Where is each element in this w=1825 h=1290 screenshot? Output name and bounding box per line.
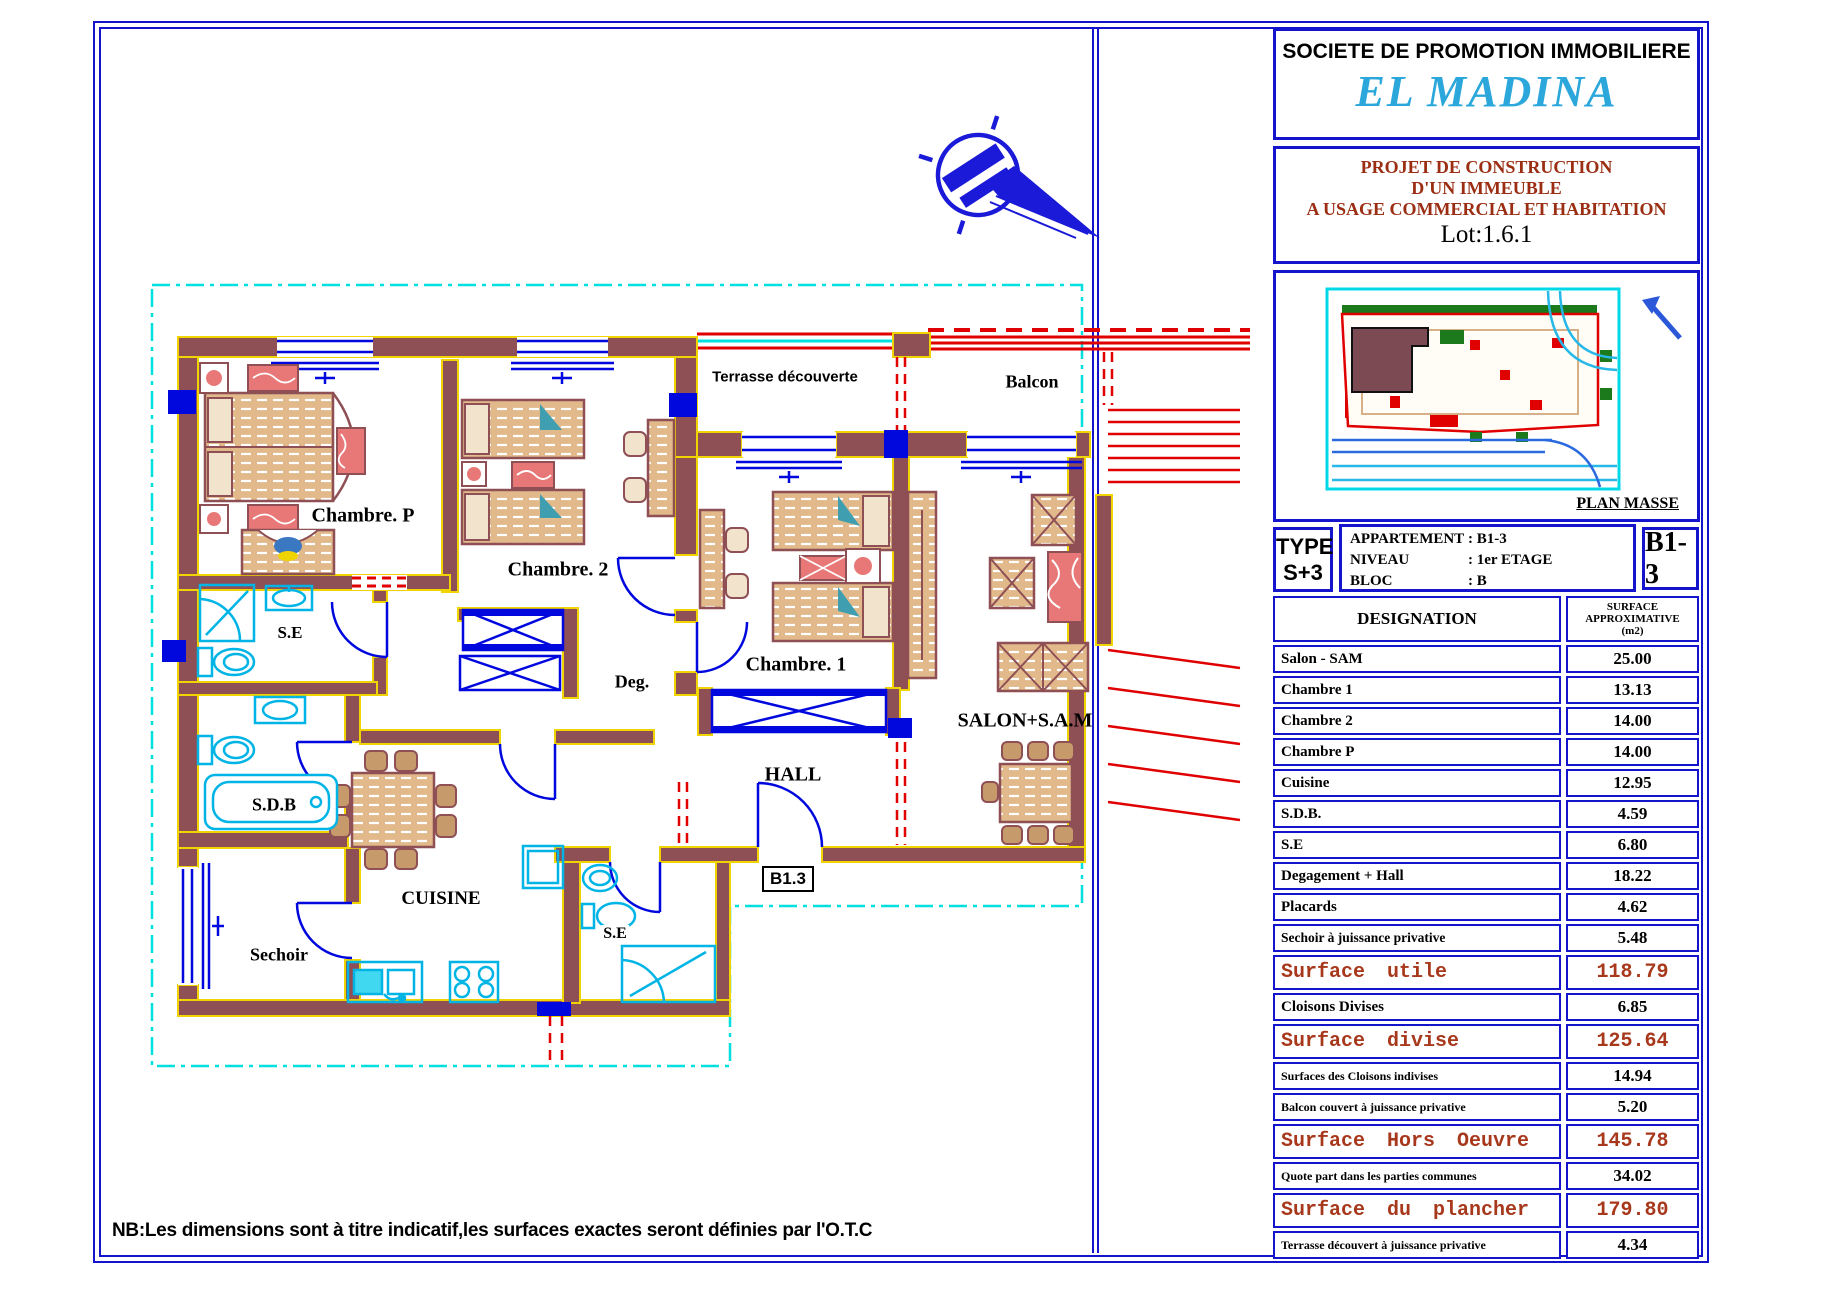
table-row-value: 25.00	[1566, 645, 1699, 673]
table-row-value: 179.80	[1566, 1193, 1699, 1228]
chambre-p-furniture	[200, 363, 365, 574]
drawing-sheet: Terrasse découverte Balcon Chambre. P Ch…	[0, 0, 1825, 1290]
table-surface-column: SURFACE APPROXIMATIVE (m2) 25.0013.1314.…	[1566, 596, 1699, 1259]
info-value: : B1-3	[1468, 529, 1507, 550]
table-row-label: Surface du plancher	[1273, 1193, 1561, 1228]
table-row-label: Cloisons Divises	[1273, 993, 1561, 1021]
room-label-hall: HALL	[765, 764, 822, 787]
surface-header-line: (m2)	[1622, 625, 1644, 637]
toilet-icon	[198, 736, 254, 764]
table-row-label: Chambre P	[1273, 738, 1561, 766]
table-row-value: 4.34	[1566, 1231, 1699, 1259]
table-row-value: 125.64	[1566, 1024, 1699, 1059]
table-row-value: 6.80	[1566, 831, 1699, 859]
room-label-chambre-p: Chambre. P	[312, 505, 415, 528]
plan-masse-box: PLAN MASSE	[1273, 270, 1700, 522]
room-label-terrasse: Terrasse découverte	[712, 369, 858, 386]
armchair	[1032, 495, 1076, 545]
table-row-label: S.D.B.	[1273, 800, 1561, 828]
table-row-value: 4.62	[1566, 893, 1699, 921]
project-line-1: PROJET DE CONSTRUCTION	[1276, 157, 1697, 178]
unit-code-box: B1-3	[1642, 527, 1699, 590]
project-line-3: A USAGE COMMERCIAL ET HABITATION	[1276, 199, 1697, 220]
rug	[248, 365, 298, 391]
fridge-icon	[523, 846, 563, 888]
table-row-label: Degagement + Hall	[1273, 862, 1561, 890]
chambre-2-furniture	[462, 400, 674, 544]
dining-table	[982, 742, 1074, 844]
lot-number: Lot:1.6.1	[1276, 221, 1697, 249]
table-row-value: 4.59	[1566, 800, 1699, 828]
table-row-label: Chambre 1	[1273, 676, 1561, 704]
unit-code: B1-3	[1645, 527, 1696, 591]
brand-name: EL MADINA	[1276, 66, 1697, 117]
table-row-label: Quote part dans les parties communes	[1273, 1162, 1561, 1190]
table-designation-column: DESIGNATION Salon - SAMChambre 1Chambre …	[1273, 596, 1561, 1259]
room-label-se-lower: S.E	[601, 925, 629, 943]
info-label: APPARTEMENT	[1342, 529, 1468, 550]
type-box: TYPE S+3	[1273, 527, 1333, 592]
room-label-sechoir: Sechoir	[250, 945, 308, 966]
table-row-value: 13.13	[1566, 676, 1699, 704]
table-row-value: 12.95	[1566, 769, 1699, 797]
table-row-value: 14.00	[1566, 707, 1699, 735]
table-row-label: Placards	[1273, 893, 1561, 921]
table-row-value: 18.22	[1566, 862, 1699, 890]
apartment-info-box: APPARTEMENT : B1-3 NIVEAU : 1er ETAGE BL…	[1339, 524, 1636, 592]
table-row-label: Surface Hors Oeuvre	[1273, 1124, 1561, 1159]
room-label-cuisine: CUISINE	[401, 888, 480, 910]
surface-header-line: APPROXIMATIVE	[1585, 613, 1680, 625]
cuisine-furniture	[330, 751, 563, 1002]
info-label: NIVEAU	[1342, 550, 1468, 571]
room-label-chambre-1: Chambre. 1	[746, 654, 847, 677]
closet-2	[460, 656, 560, 690]
table-row-label: Terrasse découvert à juissance privative	[1273, 1231, 1561, 1259]
stairwell	[1108, 410, 1240, 820]
room-label-sdb: S.D.B	[249, 795, 299, 816]
balcony-railing	[928, 330, 1250, 349]
room-label-deg: Deg.	[615, 672, 650, 693]
project-box: PROJET DE CONSTRUCTION D'UN IMMEUBLE A U…	[1273, 146, 1700, 264]
shower-icon	[200, 585, 254, 641]
plan-masse-label: PLAN MASSE	[1576, 495, 1679, 513]
desk	[700, 510, 724, 608]
table-row-value: 5.48	[1566, 924, 1699, 952]
table-row-label: Surfaces des Cloisons indivises	[1273, 1062, 1561, 1090]
company-box: SOCIETE DE PROMOTION IMMOBILIERE EL MADI…	[1273, 28, 1700, 140]
dimensions-note: NB:Les dimensions sont à titre indicatif…	[112, 1220, 872, 1242]
table-row-value: 14.00	[1566, 738, 1699, 766]
table-row-label: Balcon couvert à juissance privative	[1273, 1093, 1561, 1121]
room-label-salon: SALON+S.A.M	[958, 710, 1093, 733]
info-value: : B	[1468, 571, 1487, 592]
closet-3	[712, 690, 886, 732]
company-name: SOCIETE DE PROMOTION IMMOBILIERE	[1276, 40, 1697, 64]
room-label-chambre-2: Chambre. 2	[508, 559, 609, 582]
stove-icon	[450, 962, 498, 1002]
shower-icon	[622, 946, 715, 1002]
table-header-surface: SURFACE APPROXIMATIVE (m2)	[1566, 596, 1699, 642]
surface-header-line: SURFACE	[1607, 601, 1658, 613]
toilet-icon	[198, 648, 254, 676]
project-line-2: D'UN IMMEUBLE	[1276, 178, 1697, 199]
table-header-designation: DESIGNATION	[1273, 596, 1561, 642]
table-row-label: Salon - SAM	[1273, 645, 1561, 673]
desk	[648, 420, 674, 516]
kitchen-table	[352, 773, 434, 847]
info-row-niveau: NIVEAU : 1er ETAGE	[1342, 550, 1633, 571]
table-row-value: 118.79	[1566, 955, 1699, 990]
sink-icon	[255, 697, 305, 723]
table-row-label: Cuisine	[1273, 769, 1561, 797]
stairwell-wall	[1096, 495, 1112, 645]
info-value: : 1er ETAGE	[1468, 550, 1552, 571]
closet-1	[463, 610, 563, 650]
room-label-se-upper: S.E	[277, 623, 302, 643]
info-row-bloc: BLOC : B	[1342, 571, 1633, 592]
table-row-value: 5.20	[1566, 1093, 1699, 1121]
unit-tag: B1.3	[762, 866, 814, 892]
table-row-label: S.E	[1273, 831, 1561, 859]
type-label: TYPE	[1276, 534, 1330, 560]
info-label: BLOC	[1342, 571, 1468, 592]
north-arrow-icon	[900, 97, 1100, 253]
table-row-label: Chambre 2	[1273, 707, 1561, 735]
type-value: S+3	[1276, 560, 1330, 586]
table-row-value: 6.85	[1566, 993, 1699, 1021]
table-row-value: 34.02	[1566, 1162, 1699, 1190]
table-row-value: 14.94	[1566, 1062, 1699, 1090]
table-row-label: Surface utile	[1273, 955, 1561, 990]
table-row-value: 145.78	[1566, 1124, 1699, 1159]
table-row-label: Sechoir à juissance privative	[1273, 924, 1561, 952]
armchair	[990, 558, 1034, 608]
sofa	[998, 643, 1088, 691]
info-row-appartement: APPARTEMENT : B1-3	[1342, 529, 1633, 550]
table-row-label: Surface divise	[1273, 1024, 1561, 1059]
room-label-balcon: Balcon	[1005, 372, 1058, 393]
